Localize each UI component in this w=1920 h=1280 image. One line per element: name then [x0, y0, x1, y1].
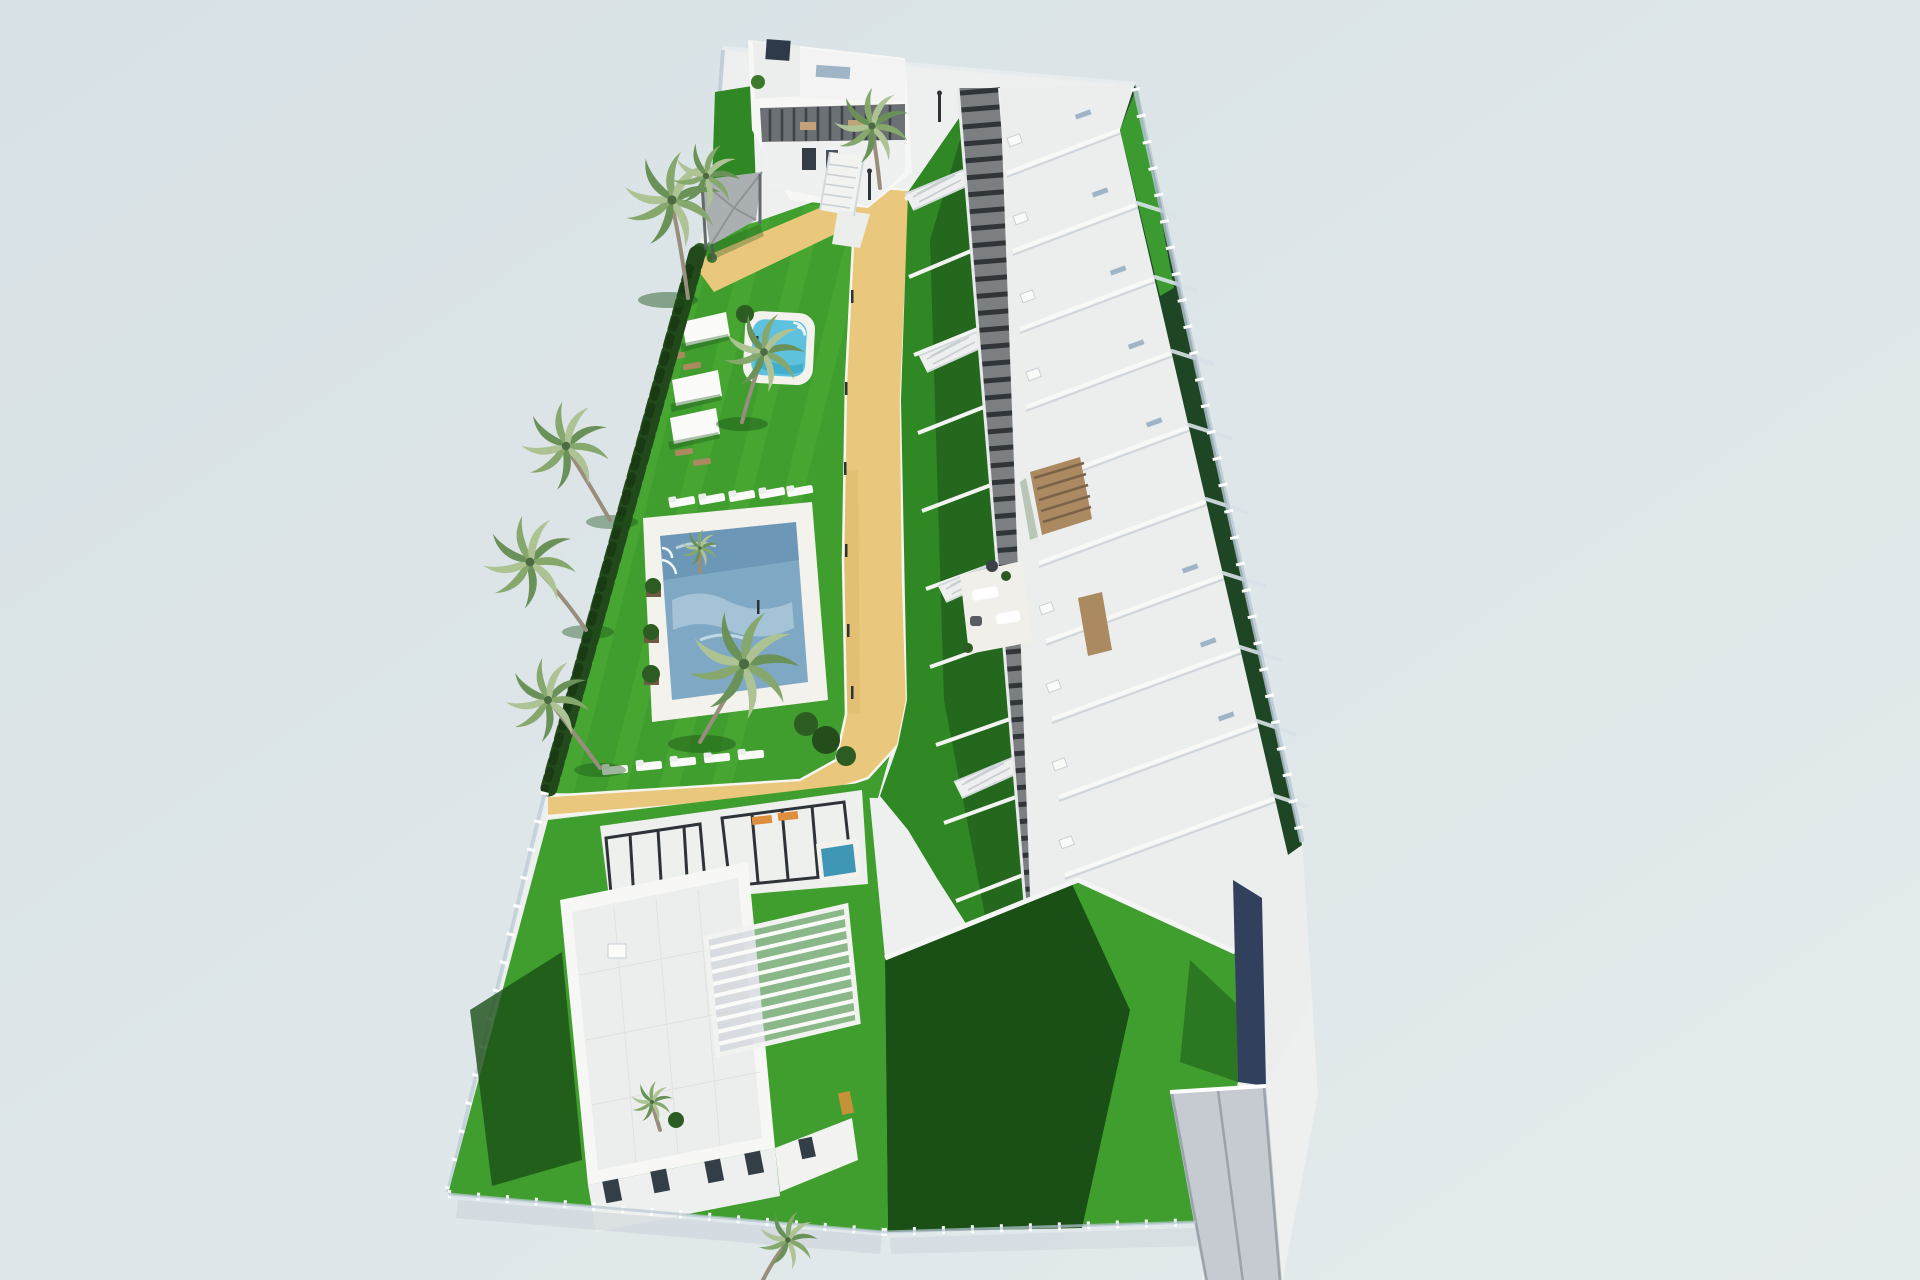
scene-svg	[0, 0, 1920, 1280]
villa-north-roof-plant	[751, 75, 765, 89]
rooftop-bbq	[986, 560, 998, 572]
villa-north-glass-panel	[816, 65, 851, 79]
villa-south-plunge-pool	[816, 838, 862, 882]
retaining-navy-wall	[1233, 880, 1266, 1086]
render-viewport	[0, 0, 1920, 1280]
villa-north-door	[802, 148, 816, 170]
villa-north-skylight	[765, 39, 790, 61]
villa-south-roof-hatch	[608, 944, 626, 958]
